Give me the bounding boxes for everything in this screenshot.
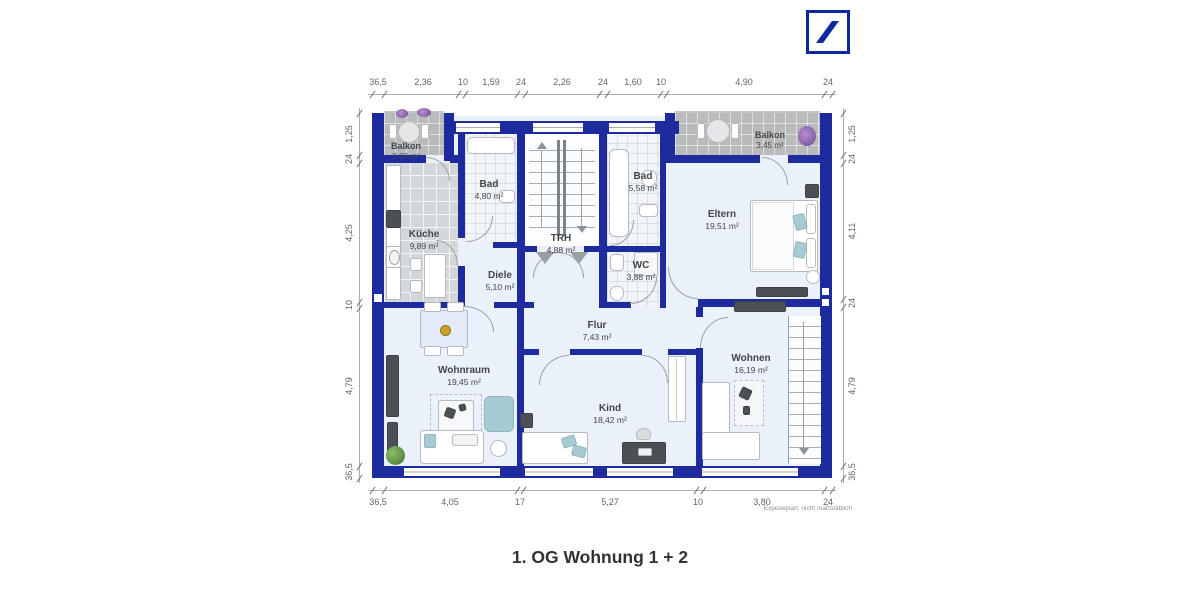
dimension-label: 36,5 xyxy=(369,77,387,87)
dimension-label: 2,36 xyxy=(414,77,432,87)
wardrobe-divider xyxy=(676,358,677,420)
rug xyxy=(734,380,764,426)
room-name: Eltern xyxy=(705,209,739,221)
room-label-bad-right: Bad 5,58 m² xyxy=(629,171,658,193)
room-name: Kind xyxy=(593,403,627,415)
dimension-label: 4,25 xyxy=(344,224,354,242)
plan-title: 1. OG Wohnung 1 + 2 xyxy=(512,547,688,568)
dimension-label: 24 xyxy=(847,154,857,164)
staircase-wohnen xyxy=(788,316,821,464)
dresser xyxy=(520,413,533,428)
room-label-kind: Kind 18,42 m² xyxy=(593,403,627,425)
window xyxy=(404,468,500,476)
tv-sideboard xyxy=(756,287,808,297)
wall-segment xyxy=(570,349,642,355)
room-area: 3,88 m² xyxy=(627,272,656,282)
dimension-label: 4,90 xyxy=(735,77,753,87)
dimension-label: 10 xyxy=(458,77,468,87)
wall-segment xyxy=(517,246,525,308)
dining-chair xyxy=(447,302,464,312)
room-name: WC xyxy=(627,260,656,272)
room-name: Diele xyxy=(486,270,515,282)
wall-segment xyxy=(660,134,666,299)
wall-segment xyxy=(444,113,454,161)
staircase-rail xyxy=(557,140,560,236)
washbasin xyxy=(639,204,658,217)
wall-segment xyxy=(696,307,703,317)
duvet xyxy=(752,202,794,270)
table-decor xyxy=(743,406,750,415)
room-label-wohnen: Wohnen 16,19 m² xyxy=(731,353,770,375)
coffee-table xyxy=(438,400,474,434)
wardrobe xyxy=(805,184,819,198)
dimension-label: 4,79 xyxy=(847,377,857,395)
sofa-cushion xyxy=(424,434,436,448)
balcony-left-edge xyxy=(384,111,444,113)
balcony-chair xyxy=(697,123,705,139)
bathtub xyxy=(467,137,515,154)
room-area: 9,89 m² xyxy=(409,241,440,251)
stair-down-arrow xyxy=(577,226,587,233)
kitchen-counter xyxy=(386,165,401,300)
dimension-label: 24 xyxy=(344,154,354,164)
dimension-line-bottom xyxy=(368,490,836,491)
table-decor xyxy=(440,325,451,336)
wall-segment xyxy=(665,155,760,163)
room-name: Bad xyxy=(475,179,504,191)
window xyxy=(609,123,655,132)
pillow xyxy=(806,238,816,268)
room-area: 19,51 m² xyxy=(705,221,739,231)
window xyxy=(456,123,500,132)
washbasin xyxy=(610,254,624,271)
balcony-table xyxy=(398,121,420,143)
dimension-label: 24 xyxy=(598,77,608,87)
room-area: 19,45 m² xyxy=(438,377,490,387)
balcony-chair xyxy=(389,124,397,139)
wall-niche xyxy=(374,294,382,302)
window xyxy=(702,468,798,476)
laptop xyxy=(638,448,652,456)
wall-segment xyxy=(660,299,666,308)
wall-segment xyxy=(458,134,465,238)
room-label-flur: Flur 7,43 m² xyxy=(583,320,612,342)
room-label-wc: WC 3,88 m² xyxy=(627,260,656,282)
balcony-chair xyxy=(421,124,429,139)
room-name: Flur xyxy=(583,320,612,332)
dimension-label: 36,5 xyxy=(369,497,387,507)
dimension-label: 1,25 xyxy=(344,125,354,143)
sink-basin xyxy=(389,250,400,265)
wall-segment xyxy=(607,302,631,308)
wall-segment xyxy=(523,349,539,355)
room-label-diele: Diele 5,10 m² xyxy=(486,270,515,292)
room-area: 2,00 m² xyxy=(391,152,421,161)
stair-up-arrow xyxy=(537,142,547,149)
wall-segment xyxy=(599,246,607,308)
window xyxy=(607,468,673,476)
dimension-label: 36,5 xyxy=(344,463,354,481)
window xyxy=(533,123,583,132)
dimension-label: 36,5 xyxy=(847,463,857,481)
room-name: TRH xyxy=(547,233,576,245)
wall-segment xyxy=(458,266,465,306)
dimension-label: 1,59 xyxy=(482,77,500,87)
wall-segment xyxy=(665,113,675,161)
staircase-trh xyxy=(529,140,595,236)
wall-segment xyxy=(668,349,696,355)
dimension-label: 24 xyxy=(823,77,833,87)
dimension-label: 4,05 xyxy=(441,497,459,507)
room-area: 18,42 m² xyxy=(593,415,627,425)
wall-niche xyxy=(822,288,829,295)
room-area: 3,45 m² xyxy=(755,141,785,150)
dimension-line-top xyxy=(368,94,836,95)
potted-plant xyxy=(386,446,405,465)
flower-planter xyxy=(417,108,431,117)
room-area: 4,88 m² xyxy=(547,245,576,255)
side-table xyxy=(806,270,820,284)
dimension-label: 3,80 xyxy=(753,497,771,507)
dimension-label: 10 xyxy=(344,300,354,310)
balcony-table xyxy=(706,119,730,143)
wall-segment xyxy=(494,302,534,308)
room-label-trh: TRH 4,88 m² xyxy=(547,233,576,255)
room-label-eltern: Eltern 19,51 m² xyxy=(705,209,739,231)
flower-planter xyxy=(396,109,408,118)
wall-segment xyxy=(517,134,525,246)
dining-chair xyxy=(447,346,464,356)
db-slash-icon xyxy=(809,13,847,51)
room-label-balkon-right: Balkon 3,45 m² xyxy=(755,130,785,150)
staircase-rail xyxy=(563,140,566,236)
toilet xyxy=(610,286,624,301)
stair-direction-line xyxy=(581,148,582,226)
stair-direction-line xyxy=(803,322,804,448)
wall-segment xyxy=(493,242,519,248)
dimension-label: 17 xyxy=(515,497,525,507)
room-label-kueche: Küche 9,89 m² xyxy=(409,229,440,251)
dimension-label: 4,11 xyxy=(847,223,857,240)
sideboard xyxy=(386,355,399,417)
armchair xyxy=(484,396,514,432)
window xyxy=(525,468,593,476)
flower-planter xyxy=(798,126,816,146)
dimension-label: 10 xyxy=(693,497,703,507)
stair-direction-line xyxy=(541,150,542,228)
sofa-cushion xyxy=(452,434,478,446)
stair-down-arrow xyxy=(799,448,809,455)
room-label-bad-left: Bad 4,80 m² xyxy=(475,179,504,201)
kitchen-chair xyxy=(410,258,422,271)
room-area: 4,80 m² xyxy=(475,191,504,201)
dimension-label: 1,25 xyxy=(847,125,857,143)
dimension-label: 4,79 xyxy=(344,377,354,395)
wall-segment xyxy=(820,113,832,478)
balcony-chair xyxy=(731,123,739,139)
room-area: 5,10 m² xyxy=(486,282,515,292)
wall-segment xyxy=(599,134,607,246)
dimension-label: 10 xyxy=(656,77,666,87)
tv-board xyxy=(734,301,786,312)
wall-segment xyxy=(788,155,832,163)
dining-chair xyxy=(424,346,441,356)
dining-chair xyxy=(424,302,441,312)
dimension-label: 2,26 xyxy=(553,77,571,87)
wardrobe xyxy=(668,356,686,422)
room-label-wohnraum: Wohnraum 19,45 m² xyxy=(438,365,490,387)
room-area: 7,43 m² xyxy=(583,332,612,342)
pillow xyxy=(806,204,816,234)
kitchen-chair xyxy=(410,280,422,293)
dimension-label: 24 xyxy=(847,298,857,308)
wall-niche xyxy=(822,299,829,306)
room-name: Bad xyxy=(629,171,658,183)
side-table xyxy=(490,440,507,457)
dimension-label: 1,60 xyxy=(624,77,642,87)
dimension-label: 5,27 xyxy=(601,497,619,507)
balcony-right-edge xyxy=(675,111,820,113)
room-name: Balkon xyxy=(391,141,421,152)
room-name: Wohnraum xyxy=(438,365,490,377)
deutsche-bank-logo xyxy=(806,10,850,54)
room-label-balkon-left: Balkon 2,00 m² xyxy=(391,141,421,161)
dimension-label: 24 xyxy=(516,77,526,87)
room-name: Wohnen xyxy=(731,353,770,365)
desk-chair xyxy=(636,428,651,440)
room-area: 16,19 m² xyxy=(731,365,770,375)
room-area: 5,58 m² xyxy=(629,183,658,193)
room-name: Balkon xyxy=(755,130,785,141)
room-name: Küche xyxy=(409,229,440,241)
corner-sofa xyxy=(702,432,760,460)
plan-footnote: Exposéplan, nicht maßstäblich xyxy=(764,505,852,512)
stove xyxy=(386,210,401,228)
dimension-label: 24 xyxy=(823,497,833,507)
